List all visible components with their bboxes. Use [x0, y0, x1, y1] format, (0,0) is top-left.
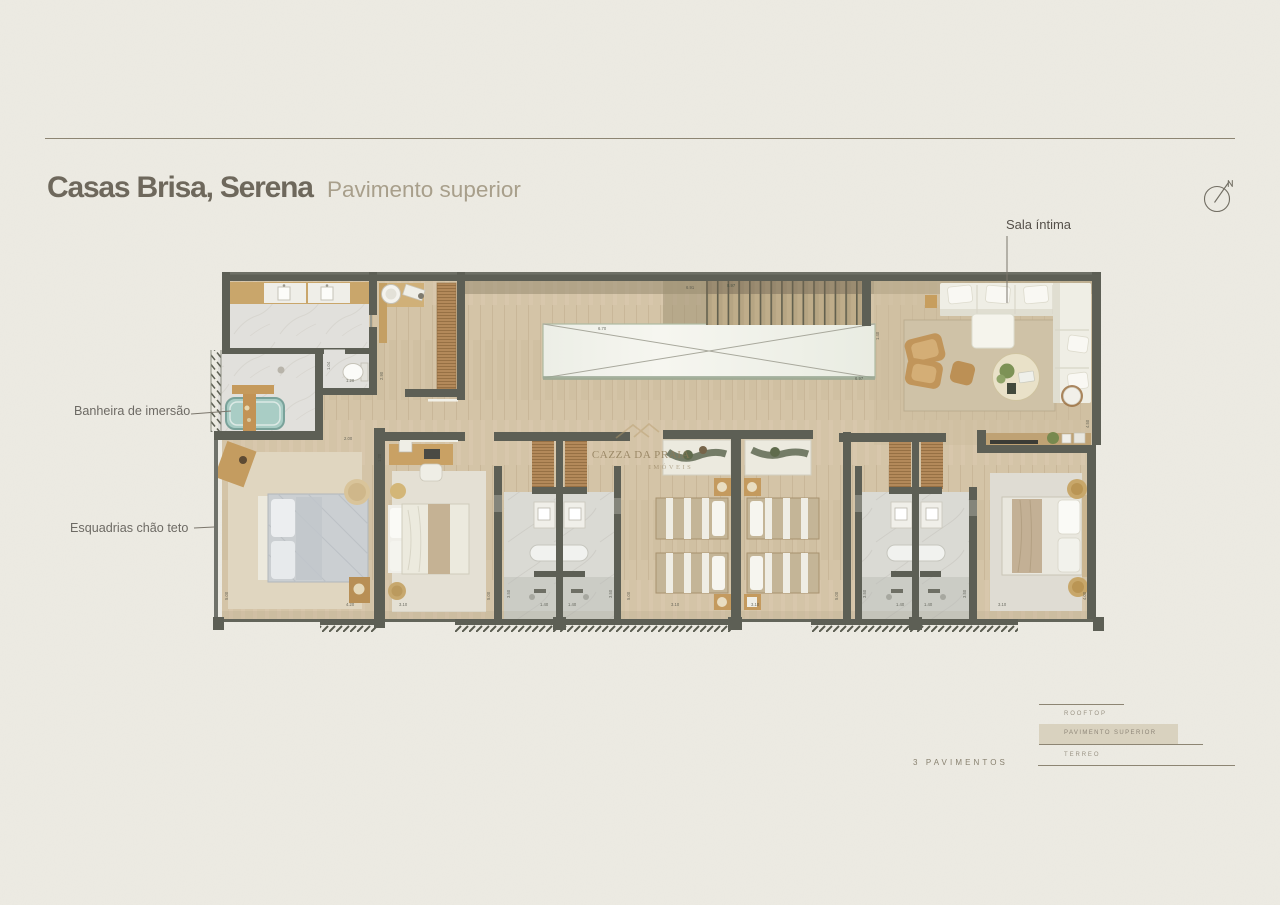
svg-text:3.50: 3.50	[862, 589, 867, 598]
svg-text:6.70: 6.70	[598, 326, 607, 331]
svg-text:1.20: 1.20	[377, 453, 382, 462]
svg-text:5.00: 5.00	[486, 591, 491, 600]
svg-text:6.97: 6.97	[855, 376, 864, 381]
svg-text:3.10: 3.10	[751, 602, 760, 607]
svg-text:4.20: 4.20	[346, 602, 355, 607]
svg-text:1.40: 1.40	[875, 331, 880, 340]
svg-text:1.40: 1.40	[896, 602, 905, 607]
svg-text:5.00: 5.00	[224, 591, 229, 600]
svg-text:3.10: 3.10	[399, 602, 408, 607]
svg-text:3.50: 3.50	[608, 589, 613, 598]
svg-text:5.00: 5.00	[626, 591, 631, 600]
svg-text:3.50: 3.50	[506, 589, 511, 598]
svg-text:IMÓVEIS: IMÓVEIS	[649, 463, 694, 471]
svg-text:6.91: 6.91	[686, 285, 695, 290]
svg-text:4.50: 4.50	[1085, 419, 1090, 428]
svg-text:3.10: 3.10	[671, 602, 680, 607]
svg-text:2.90: 2.90	[379, 371, 384, 380]
svg-text:4.00: 4.00	[1082, 591, 1087, 600]
svg-text:8.97: 8.97	[727, 283, 736, 288]
svg-text:3.10: 3.10	[998, 602, 1007, 607]
svg-text:1.40: 1.40	[924, 602, 933, 607]
svg-text:3.50: 3.50	[962, 589, 967, 598]
svg-text:1.40: 1.40	[568, 602, 577, 607]
svg-text:5.00: 5.00	[834, 591, 839, 600]
svg-text:1.04: 1.04	[326, 361, 331, 370]
svg-text:1.40: 1.40	[540, 602, 549, 607]
svg-text:CAZZA DA PRAIA: CAZZA DA PRAIA	[592, 449, 690, 461]
svg-text:2.00: 2.00	[344, 436, 353, 441]
svg-text:1.20: 1.20	[346, 378, 355, 383]
